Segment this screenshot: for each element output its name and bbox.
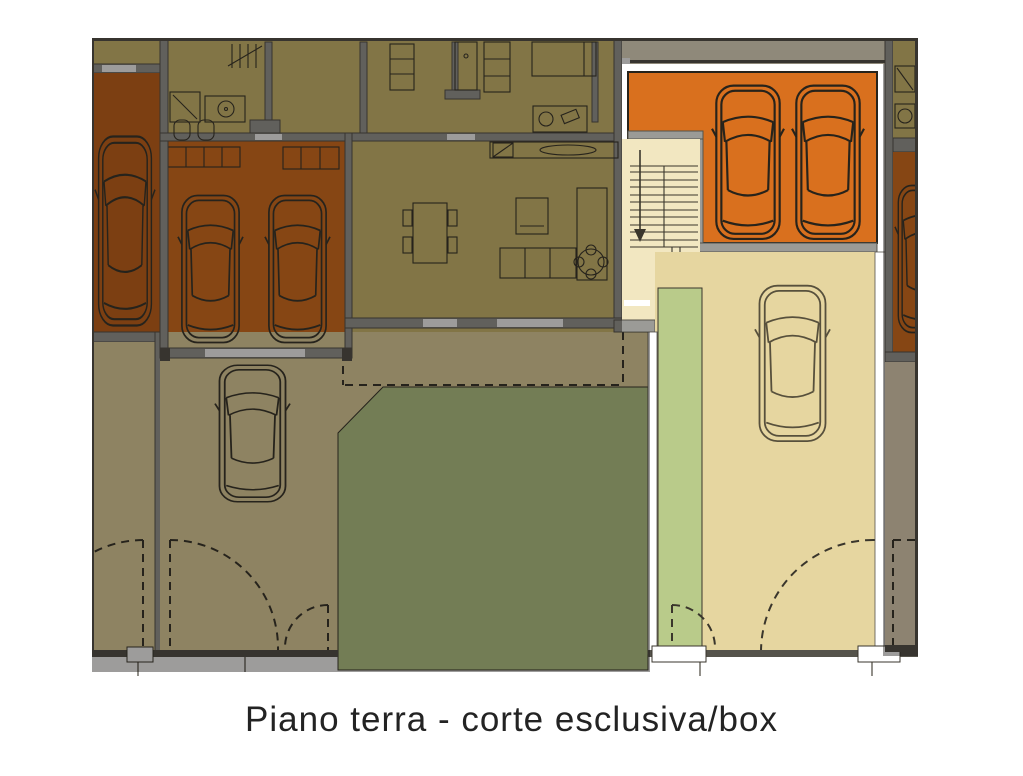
- plan-caption: Piano terra - corte esclusiva/box: [0, 700, 1023, 740]
- south-ticks: [700, 662, 872, 676]
- box-inner-wall-h: [628, 131, 703, 139]
- entry-path: [622, 255, 655, 320]
- highlighted-unit: [614, 38, 918, 676]
- south-pillar-1: [652, 646, 706, 662]
- green-strip: [658, 288, 702, 650]
- box-front-apron: [628, 64, 877, 72]
- entry-door-mark: [624, 300, 650, 306]
- floor-plan: [0, 0, 1023, 776]
- stair-hall: [622, 139, 700, 255]
- floor-plan-page: Piano terra - corte esclusiva/box: [0, 0, 1023, 776]
